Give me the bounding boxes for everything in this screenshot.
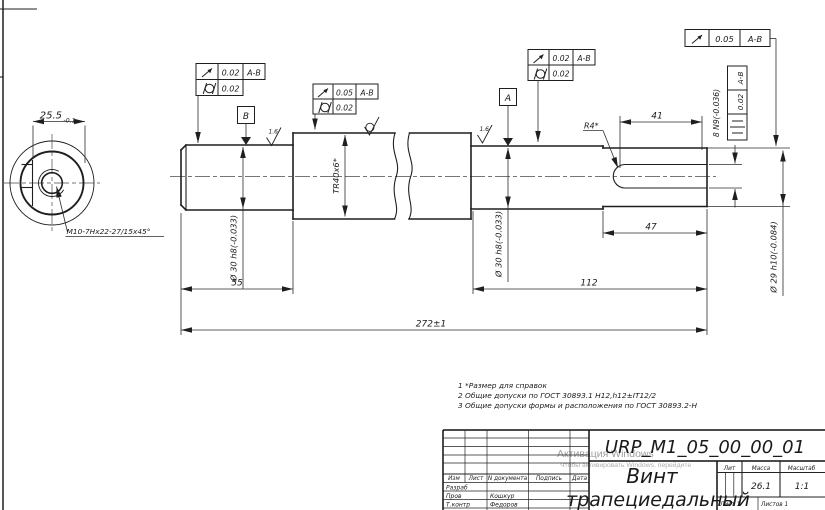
datum-flag-a: A <box>500 89 517 147</box>
tolerance-datum: A-B <box>576 54 590 63</box>
tolerance-value: 0.02 <box>553 54 570 63</box>
sheet-border <box>0 0 37 510</box>
dim-dia30-left: Ø 30 h8(-0.033) <box>229 215 239 282</box>
title-block: Изм Лист N документа Подпись Дата Разраб… <box>443 430 825 510</box>
tolerance-value: 0.02 <box>736 93 745 110</box>
dim-25-5: 25.5 <box>40 111 62 122</box>
tolerance-datum: A-B <box>736 72 745 86</box>
lit-header: Лит <box>723 466 736 472</box>
row-label: Пров <box>446 493 462 500</box>
part-name-line1: Винт <box>626 464 679 488</box>
datum-flag-b: B <box>238 107 255 146</box>
col-header-list: Лист <box>468 476 484 482</box>
dim-25-5-tol: -0.1 <box>64 118 76 125</box>
thread-callout: M10-7Hx22-27/15x45° <box>67 227 151 236</box>
roughness-value: 1.6 <box>268 129 278 136</box>
dim-r4: R4* <box>584 122 599 131</box>
technical-drawing-canvas: 25.5 -0.1 M10-7Hx22-27/15x45° <box>0 0 825 510</box>
dim-tr40x6: TR40x6* <box>331 158 341 194</box>
tolerance-frame-2: 0.05 A-B 0.02 <box>313 84 378 130</box>
tolerance-value: 0.05 <box>715 34 733 44</box>
tolerance-value: 0.05 <box>336 88 353 97</box>
note-line: 1 *Размер для справок <box>458 381 547 390</box>
tolerance-value: 0.02 <box>336 103 353 112</box>
roughness-icon: 1.6 <box>267 128 282 146</box>
roughness-icon: 1.6 <box>478 125 493 143</box>
col-header-date: Дата <box>571 476 587 482</box>
row-name: Федоров <box>490 502 518 509</box>
dim-keyway-width: 8 N9(-0.036) <box>712 89 721 137</box>
sheets-total: Листов 1 <box>760 502 788 508</box>
tolerance-datum: A-B <box>747 34 763 44</box>
dim-dia29: Ø 29 h10(-0.084) <box>769 221 779 293</box>
tolerance-value: 0.02 <box>553 70 570 79</box>
mass-header: Масса <box>752 466 771 472</box>
break-line <box>408 133 412 219</box>
scale-value: 1:1 <box>795 482 809 492</box>
row-label: Т.контр <box>446 502 470 509</box>
tolerance-datum: A-B <box>359 88 373 97</box>
tolerance-value: 0.02 <box>222 85 240 94</box>
note-line: 3 Общие допуски формы и расположения по … <box>458 401 697 410</box>
datum-label: B <box>243 112 249 122</box>
roughness-marks: 1.6 1.6 <box>267 117 493 146</box>
dim-47: 47 <box>645 223 657 233</box>
row-name: Кошкур <box>490 493 515 500</box>
dim-41: 41 <box>651 112 662 122</box>
col-header-izm: Изм <box>448 476 460 482</box>
dim-dia30-right: Ø 30 h8(-0.033) <box>494 211 504 278</box>
tolerance-frame-keyway: A-B 0.02 <box>728 66 748 140</box>
document-number: URP_M1_05_00_00_01 <box>605 437 805 458</box>
shaft-outline <box>170 133 716 219</box>
col-header-doc: N документа <box>488 476 528 482</box>
notes: 1 *Размер для справок 2 Общие допуски по… <box>458 381 697 410</box>
col-header-sign: Подпись <box>536 476 562 482</box>
row-label: Разраб <box>446 485 468 492</box>
dim-overall: 272±1 <box>416 320 446 330</box>
datum-label: A <box>504 94 511 104</box>
drawing-sheet: 25.5 -0.1 M10-7Hx22-27/15x45° <box>0 0 825 510</box>
scale-header: Масштаб <box>788 466 816 472</box>
break-line <box>393 133 397 219</box>
sheet-number: Лист 1 <box>719 502 740 508</box>
end-view: 25.5 -0.1 M10-7Hx22-27/15x45° <box>4 111 164 237</box>
tolerance-value: 0.02 <box>222 69 240 78</box>
tolerance-frame-1: 0.02 A-B 0.02 <box>196 64 265 144</box>
tolerance-datum: A-B <box>246 69 261 78</box>
roughness-value: 1.6 <box>479 126 489 133</box>
note-line: 2 Общие допуски по ГОСТ 30893.1 H12,h12±… <box>458 391 656 400</box>
mass-value: 26.1 <box>751 482 771 492</box>
dim-112: 112 <box>580 279 597 289</box>
